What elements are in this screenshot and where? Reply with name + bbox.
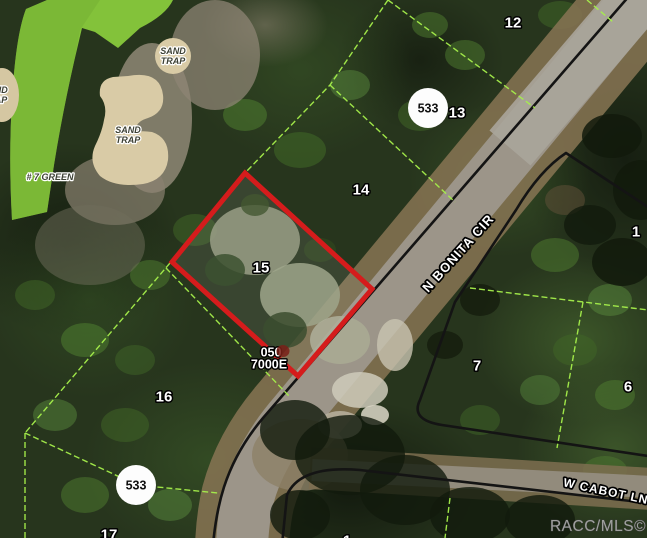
parcel-label-17: 17 xyxy=(101,526,118,538)
parcel-label-6: 6 xyxy=(624,378,632,395)
cleared-patch xyxy=(377,319,413,371)
parcel-label-7: 7 xyxy=(473,357,481,374)
golf-ground xyxy=(35,205,145,285)
map-canvas[interactable]: SAND TRAP SAND TRAP SAND TRAP # 7 GREEN xyxy=(0,0,647,538)
route-marker-label: 533 xyxy=(126,478,147,492)
lot-code: 050 7000E xyxy=(251,345,290,371)
cleared-patch xyxy=(332,372,388,408)
watermark: RACC/MLS© xyxy=(550,518,646,535)
sand-trap-label: TRAP xyxy=(161,56,186,66)
parcel-label-13: 13 xyxy=(449,104,466,121)
map-overlay: SAND TRAP SAND TRAP SAND TRAP # 7 GREEN xyxy=(0,0,647,538)
code-obscuring-blob xyxy=(277,345,290,357)
sand-trap-label: SAND xyxy=(115,125,141,135)
parcel-label-15: 15 xyxy=(253,259,270,276)
parcel-label-14: 14 xyxy=(353,181,370,198)
parcel-label-16: 16 xyxy=(156,388,173,405)
sand-trap-label: TRAP xyxy=(116,135,141,145)
parcel-label-12: 12 xyxy=(505,14,522,31)
golf-green-label: # 7 GREEN xyxy=(26,172,74,182)
route-marker-533-north: 533 xyxy=(408,88,448,128)
sand-trap-label: SAND xyxy=(0,85,8,95)
route-marker-label: 533 xyxy=(418,101,439,115)
route-marker-533-south: 533 xyxy=(116,465,156,505)
sand-trap-label: SAND xyxy=(160,46,186,56)
lot-code-line2: 7000E xyxy=(251,357,287,371)
sand-trap-label: TRAP xyxy=(0,95,8,105)
parcel-label-1-south: 1 xyxy=(343,532,351,538)
parcel-label-1: 1 xyxy=(632,223,640,240)
